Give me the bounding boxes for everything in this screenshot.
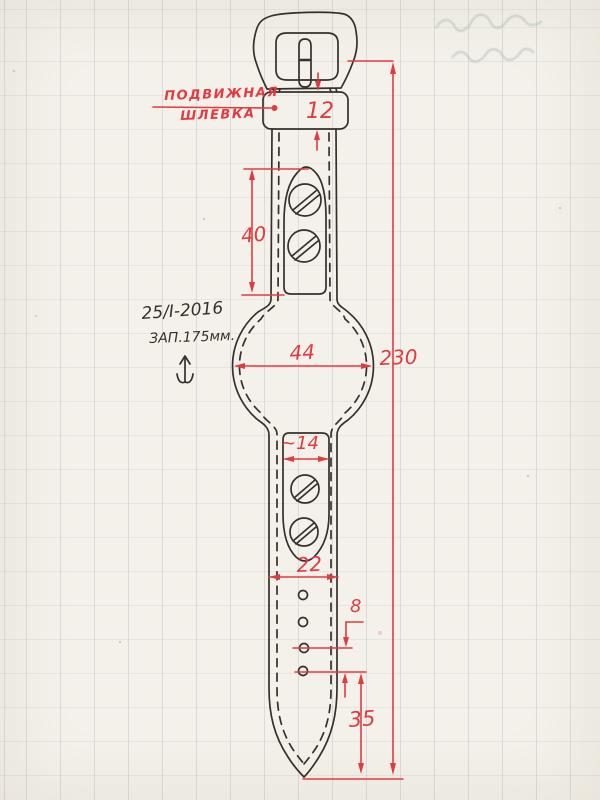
adjustment-holes xyxy=(299,591,309,676)
screw-rivet xyxy=(289,184,321,216)
dim-total-length xyxy=(348,61,396,775)
keeper-label-line2: ШЛЁВКА xyxy=(180,107,256,123)
buckle xyxy=(253,12,357,92)
keeper-label-line1: ПОДВИЖНАЯ xyxy=(164,86,279,103)
screw-rivet xyxy=(290,518,318,546)
screw-rivet xyxy=(288,230,320,262)
ink-bleedthrough-handwriting xyxy=(436,15,542,62)
strap-hole xyxy=(299,667,308,676)
dim-text-hole-pitch: 8 xyxy=(350,598,361,616)
dim-hole-pitch xyxy=(293,622,366,697)
anchor-mark xyxy=(177,356,193,383)
strap-hole xyxy=(299,591,308,600)
watch-strap-technical-drawing xyxy=(0,0,600,800)
graph-paper-sheet: ПОДВИЖНАЯ ШЛЁВКА 12 40 44 230 ~14 22 8 3… xyxy=(0,0,600,800)
dim-slot-width xyxy=(283,456,329,462)
note-stock-length: ЗАП.175мм. xyxy=(149,329,235,346)
dim-text-keeper-width: 12 xyxy=(306,101,334,123)
buckle-frame-outline xyxy=(253,12,357,89)
dim-text-tip-offset: 35 xyxy=(348,708,376,731)
strap-hole xyxy=(299,618,308,627)
screw-rivet xyxy=(291,475,319,503)
dim-text-case-width: 44 xyxy=(289,342,315,363)
upper-screw-pad xyxy=(284,167,326,294)
dim-text-slot-width: ~14 xyxy=(281,435,319,453)
dim-text-total-length: 230 xyxy=(379,347,418,368)
paper-specks xyxy=(13,70,562,644)
dim-text-upper-pad-length: 40 xyxy=(240,223,267,246)
dim-text-strap-width: 22 xyxy=(296,554,322,575)
